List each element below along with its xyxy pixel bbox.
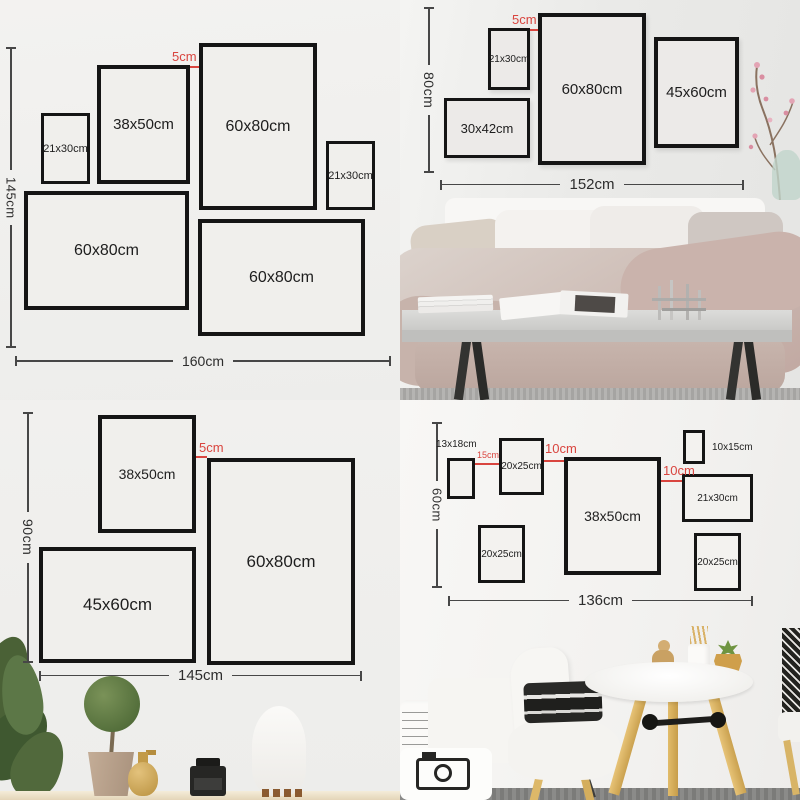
gap-line — [544, 460, 564, 462]
quadrant-top-right: 80cm 152cm 21x30cm 60x80cm 45x60cm 30x42… — [400, 0, 800, 400]
succulent — [718, 640, 738, 656]
table-leg — [668, 700, 678, 796]
frame-size-label: 38x50cm — [113, 116, 174, 133]
jar-label — [194, 778, 222, 790]
gallery-wall-size-guide: 145cm 160cm 21x30cm 38x50cm 60x80cm 21x3… — [0, 0, 800, 800]
gap-line — [190, 66, 199, 68]
frame-size-label: 60x80cm — [249, 269, 314, 287]
frame-38x50: 38x50cm — [564, 457, 661, 575]
frame-size-label: 45x60cm — [83, 595, 152, 615]
camera-flash-icon — [422, 752, 436, 758]
frame-60x80: 60x80cm — [538, 13, 646, 165]
frame-size-label: 21x30cm — [697, 493, 738, 504]
sheer-lamp — [252, 706, 306, 796]
quadrant-top-left: 145cm 160cm 21x30cm 38x50cm 60x80cm 21x3… — [0, 0, 400, 400]
chair-seat — [778, 712, 800, 742]
frame-60x80: 60x80cm — [207, 458, 355, 665]
brass-sprayer — [128, 762, 158, 796]
plant-pot — [88, 752, 134, 796]
frame-60x80: 60x80cm — [198, 219, 365, 336]
width-measure: 160cm — [15, 354, 391, 368]
topiary-plant — [84, 676, 140, 732]
frame-20x25: 20x25cm — [694, 533, 741, 591]
table-leg — [708, 696, 746, 795]
bench-front — [402, 330, 792, 342]
gap-line — [661, 480, 682, 482]
frame-21x30: 21x30cm — [326, 141, 375, 210]
frame-21x30: 21x30cm — [682, 474, 753, 522]
candle-holder — [658, 286, 661, 320]
width-label: 152cm — [560, 177, 623, 192]
frame-size-label: 60x80cm — [74, 242, 139, 260]
width-label: 136cm — [569, 593, 632, 608]
round-table-top — [585, 662, 753, 702]
chair-wood-leg — [783, 740, 799, 795]
height-label: 90cm — [21, 512, 35, 562]
frame-size-label: 13x18cm — [436, 439, 477, 450]
frame-60x80: 60x80cm — [199, 43, 317, 210]
frame-60x80: 60x80cm — [24, 191, 189, 310]
height-label: 80cm — [422, 65, 436, 115]
book-photo — [575, 295, 616, 313]
frame-size-label: 38x50cm — [584, 508, 641, 524]
frame-10x15 — [683, 430, 705, 464]
gap-line — [196, 456, 207, 458]
glass-vase — [772, 150, 800, 200]
frame-size-label: 21x30cm — [489, 54, 530, 65]
frame-20x25: 20x25cm — [478, 525, 525, 583]
frame-38x50: 38x50cm — [97, 65, 190, 184]
frame-size-label: 45x60cm — [666, 84, 727, 101]
quadrant-bottom-right: 60cm 136cm 13x18cm 20x25cm 38x50cm 10x15… — [400, 400, 800, 800]
candle-holder-bar — [662, 308, 706, 311]
book-stack — [418, 295, 494, 314]
height-label: 145cm — [5, 170, 18, 226]
width-measure: 145cm — [39, 668, 362, 683]
quadrant-bottom-left: 90cm 145cm 38x50cm 60x80cm 45x60cm 5cm — [0, 400, 400, 800]
gap-label: 15cm — [477, 451, 499, 460]
frame-13x18 — [447, 458, 475, 499]
candle-holder-bar — [652, 298, 706, 301]
gap-line — [475, 463, 499, 465]
frame-size-label: 60x80cm — [562, 81, 623, 98]
height-measure: 90cm — [22, 412, 34, 663]
frame-size-label: 21x30cm — [328, 170, 373, 182]
width-label: 145cm — [169, 668, 232, 683]
frame-size-label: 38x50cm — [119, 466, 176, 482]
candle-holder — [686, 284, 689, 320]
candle-holder — [698, 290, 701, 320]
frame-size-label: 20x25cm — [481, 549, 522, 560]
frame-38x50: 38x50cm — [98, 415, 196, 533]
frame-size-label: 20x25cm — [501, 461, 542, 472]
width-label: 160cm — [173, 354, 233, 368]
gap-line — [530, 29, 538, 31]
gap-label: 5cm — [199, 441, 224, 454]
frame-30x42: 30x42cm — [444, 98, 530, 158]
gap-label: 10cm — [663, 464, 695, 477]
frame-size-label: 10x15cm — [712, 442, 753, 453]
frame-size-label: 20x25cm — [697, 557, 738, 568]
gap-label: 5cm — [172, 50, 197, 63]
frame-21x30: 21x30cm — [41, 113, 90, 184]
pencils — [690, 626, 708, 646]
frame-20x25: 20x25cm — [499, 438, 544, 495]
height-measure: 80cm — [423, 7, 435, 173]
frame-45x60: 45x60cm — [39, 547, 196, 663]
frame-size-label: 21x30cm — [43, 143, 88, 155]
chair-seat — [508, 718, 620, 780]
table-hardware — [710, 712, 726, 728]
camera-lens-icon — [434, 764, 452, 782]
width-measure: 152cm — [440, 177, 744, 192]
width-measure: 136cm — [448, 593, 753, 608]
frame-size-label: 60x80cm — [226, 118, 291, 136]
gap-label: 5cm — [512, 13, 537, 26]
small-bottles — [262, 789, 306, 797]
patterned-chair — [782, 628, 800, 723]
height-label: 60cm — [431, 481, 444, 529]
table-hardware — [642, 714, 658, 730]
frame-size-label: 30x42cm — [461, 121, 514, 136]
height-measure: 145cm — [5, 47, 17, 348]
gap-label: 10cm — [545, 442, 577, 455]
frame-size-label: 60x80cm — [247, 552, 316, 572]
frame-45x60: 45x60cm — [654, 37, 739, 148]
frame-21x30: 21x30cm — [488, 28, 530, 90]
